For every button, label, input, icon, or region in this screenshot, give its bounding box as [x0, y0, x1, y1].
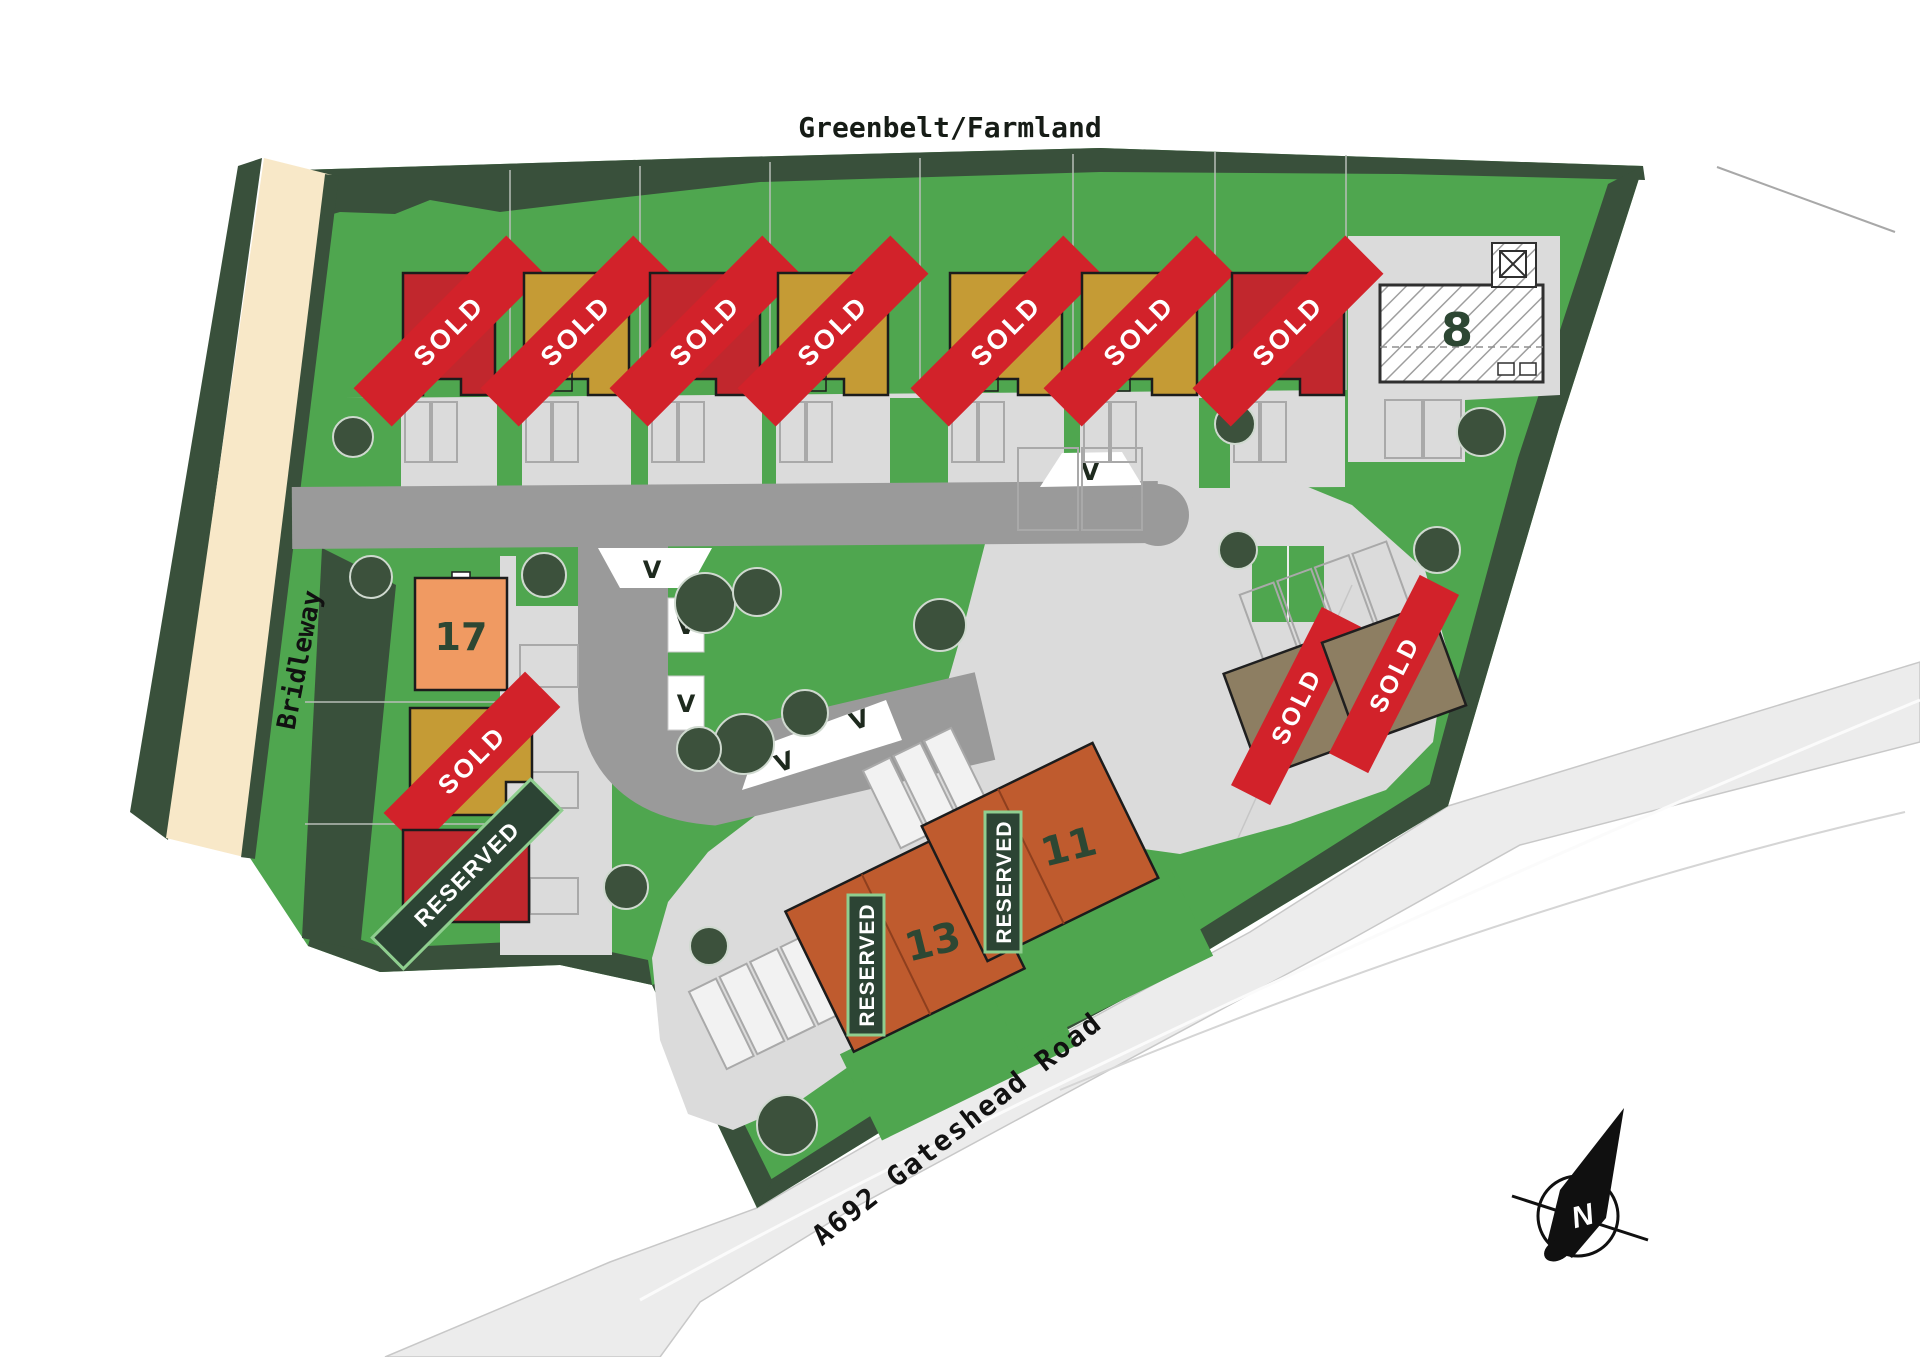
plot-17[interactable]: 17	[415, 572, 507, 690]
plot8-store	[1520, 363, 1536, 375]
tree-icon	[782, 690, 828, 736]
visitor-bay-label: V	[677, 690, 696, 718]
plot-number-8: 8	[1441, 303, 1473, 357]
tree-icon	[677, 727, 721, 771]
main-road-end	[1127, 484, 1189, 546]
tree-icon	[690, 927, 728, 965]
tree-icon	[522, 553, 566, 597]
plot-number-17: 17	[435, 615, 488, 659]
reserved-banner: RESERVED	[848, 895, 884, 1035]
greenbelt-label: Greenbelt/Farmland	[798, 111, 1101, 144]
visitor-bay-label: V	[643, 556, 662, 584]
offsite-boundary-line	[1717, 167, 1895, 232]
reserved-banner: RESERVED	[985, 812, 1021, 952]
tree-icon	[1414, 527, 1460, 573]
tree-icon	[733, 568, 781, 616]
main-road	[292, 512, 1158, 518]
tree-icon	[914, 599, 966, 651]
reserved-banner-text: RESERVED	[993, 820, 1016, 943]
tree-icon	[350, 556, 392, 598]
substation-icon	[1500, 251, 1526, 277]
tree-icon	[714, 714, 774, 774]
reserved-banner-text: RESERVED	[856, 903, 879, 1026]
site-plan: V V V V V V	[0, 0, 1920, 1357]
tree-icon	[675, 573, 735, 633]
compass-rose: N	[1512, 1108, 1648, 1266]
tree-icon	[1219, 531, 1257, 569]
tree-icon	[757, 1095, 817, 1155]
tree-icon	[333, 417, 373, 457]
plot8-store	[1498, 363, 1514, 375]
site-plan-page: V V V V V V	[0, 0, 1920, 1357]
tree-icon	[604, 865, 648, 909]
tree-icon	[1457, 408, 1505, 456]
